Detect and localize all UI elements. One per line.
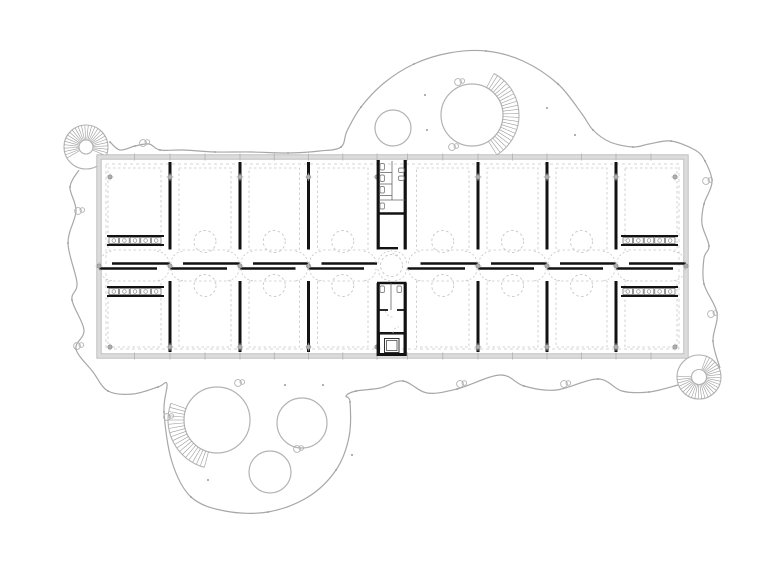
curved-stair-tread [489, 76, 498, 89]
floor-plan-canvas [0, 0, 780, 572]
site-tick [523, 385, 525, 387]
curved-stair-tread [496, 134, 509, 144]
site-tick [712, 340, 714, 342]
spiral-stair-tread [81, 125, 84, 140]
curved-stair-tread [170, 429, 185, 433]
spiral-stair-tread [93, 142, 108, 145]
site-tick [648, 391, 650, 393]
spiral-stair-tread [706, 377, 720, 378]
spiral-stair [677, 355, 721, 399]
site-tick [287, 152, 289, 154]
curved-stair-tread [495, 84, 507, 95]
site-tick [597, 378, 599, 380]
elevator-shaft-wall [377, 333, 380, 356]
core-wall [404, 160, 407, 250]
building-layer [97, 154, 688, 360]
curved-stair-tread [179, 441, 191, 451]
spiral-stair-tread [698, 384, 699, 398]
tree-circle [184, 387, 250, 453]
curved-stair-tread [171, 431, 186, 436]
site-tick [67, 242, 69, 244]
site-bump-circle [79, 343, 84, 348]
curved-stair-tread [200, 451, 205, 466]
curved-stair-tread [193, 449, 201, 463]
curved-stair-tread [493, 138, 504, 150]
site-bump-circle [240, 380, 245, 385]
site-tick [703, 283, 705, 285]
curved-stair-tread [502, 105, 518, 108]
curved-stair-tread [503, 117, 519, 118]
site-dot [207, 479, 209, 481]
elevator-shaft-wall [404, 333, 407, 356]
site-tick [349, 401, 351, 403]
spiral-stair-tread [677, 378, 691, 380]
curved-stair-tread [169, 426, 185, 429]
site-bump [74, 343, 84, 350]
partition-wall [307, 281, 310, 352]
curved-stair-tread [493, 81, 504, 93]
partition-wall [546, 281, 549, 352]
site-tick [214, 151, 216, 153]
wc-fixture [380, 164, 385, 171]
site-tick [267, 511, 269, 513]
exterior-wall-band [99, 157, 686, 356]
site-tick [402, 380, 404, 382]
site-tick [708, 245, 710, 247]
curved-stair-tread [204, 452, 208, 467]
spiral-stair-newel [79, 140, 93, 154]
site-bump-circle [566, 381, 571, 386]
site-tick [632, 146, 634, 148]
spiral-stair-tread [87, 125, 89, 140]
partition-wall [169, 281, 172, 352]
spiral-stair-tread [85, 125, 86, 140]
site-tick [163, 411, 165, 413]
spiral-stair-tread [677, 376, 691, 377]
site-tick [456, 388, 458, 390]
curved-stair-tread [175, 437, 189, 445]
site-dot [574, 134, 576, 136]
spiral-stair-tread [64, 148, 79, 151]
site-bump [294, 446, 304, 453]
curved-stair-tread [177, 439, 190, 448]
site-bump-circle [462, 381, 467, 386]
curved-stair-tread [500, 94, 514, 101]
spiral-stair-tread [64, 145, 79, 147]
site-dot [284, 384, 286, 386]
site-tick [360, 106, 362, 108]
spiral-stair-tread [93, 148, 108, 150]
site-bump [703, 178, 713, 185]
site-dot [546, 107, 548, 109]
site-dot [424, 94, 426, 96]
elevator-shaft-wall [377, 353, 407, 356]
wc-fixture [399, 176, 405, 181]
curved-stair-tread [189, 447, 198, 460]
site-tick [704, 160, 706, 162]
spiral-stair-tread [700, 384, 702, 398]
curved-stair-tread [168, 423, 184, 424]
site-bump-circle [80, 208, 85, 213]
wc-fixture [380, 175, 385, 182]
site-tick [355, 390, 357, 392]
site-dot [351, 454, 353, 456]
partition-wall [615, 281, 618, 352]
curved-stair-tread [196, 450, 203, 465]
wc-fixture [397, 286, 402, 293]
core-wall [377, 160, 380, 250]
site-tick [703, 203, 705, 205]
curved-stair-tread [495, 136, 507, 147]
wc-fixture [380, 187, 385, 194]
site-tick [340, 146, 342, 148]
site-tick [592, 129, 594, 131]
site-tick [157, 386, 159, 388]
site-tick [134, 145, 136, 147]
site-tick [71, 299, 73, 301]
site-bump [140, 140, 150, 147]
site-bump [449, 144, 459, 151]
curved-stair-tread [502, 122, 518, 126]
curved-stair-tread [499, 130, 513, 138]
partition-wall [239, 281, 242, 352]
site-tick [107, 390, 109, 392]
site-tick [557, 83, 559, 85]
partition-wall [477, 281, 480, 352]
wc-fixture [380, 286, 385, 293]
curved-stair-edge [168, 403, 204, 467]
tree-circle [375, 110, 411, 146]
site-dot [426, 129, 428, 131]
curved-stair-tread [491, 78, 501, 91]
tree-circle [277, 398, 327, 448]
curved-stair-tread [503, 113, 519, 114]
spiral-stair-tread [706, 378, 720, 381]
wc-fixture [399, 168, 405, 173]
curved-stair-tread [491, 140, 501, 153]
curved-stair-tread [497, 87, 510, 97]
site-tick [109, 141, 111, 143]
spiral-stair-newel [692, 370, 707, 385]
site-tick [670, 140, 672, 142]
site-tick [485, 50, 487, 52]
wc-fixture [380, 203, 385, 209]
site-tick [335, 469, 337, 471]
site-tick [159, 149, 161, 151]
curved-stair-tread [186, 445, 196, 457]
curved-stair-tread [503, 119, 519, 121]
curved-stair-tread [498, 132, 511, 141]
tree-circle [249, 451, 291, 493]
site-bump-circle [460, 79, 465, 84]
curved-stair-tread [170, 407, 185, 411]
site-dot [322, 384, 324, 386]
curved-stair-tread [173, 434, 188, 441]
site-bump [455, 79, 465, 86]
curved-stair-tread [182, 443, 193, 454]
site-bump [235, 380, 245, 387]
spiral-stair-tread [64, 147, 79, 148]
site-bump-circle [454, 144, 459, 149]
floor-plan-page [0, 0, 780, 572]
spiral-stair-tread [93, 146, 108, 147]
curved-stair-tread [488, 141, 496, 155]
site-tick [190, 496, 192, 498]
curved-stair-tread [503, 109, 519, 111]
site-tick [413, 63, 415, 65]
site-tick [69, 186, 71, 188]
tree-circle [441, 84, 503, 146]
curved-stair-tread [487, 74, 495, 88]
spiral-stair-tread [706, 374, 720, 376]
curved-stair-tread [498, 90, 512, 98]
curved-stair-tread [171, 403, 186, 408]
spiral-stair-tread [695, 384, 698, 398]
